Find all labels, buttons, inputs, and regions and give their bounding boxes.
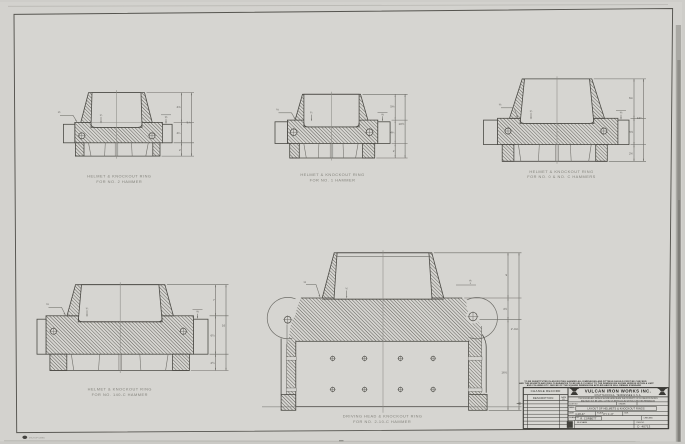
svg-text:ORDER: ORDER <box>619 403 626 405</box>
svg-text:DESCRIPTION: DESCRIPTION <box>533 396 554 400</box>
svg-text:2¼: 2¼ <box>629 151 634 155</box>
svg-text:4¾: 4¾ <box>177 131 182 135</box>
svg-text:4½: 4½ <box>503 307 508 311</box>
svg-text:HELMET & KNOCKOUT RING: HELMET & KNOCKOUT RING <box>88 387 152 392</box>
svg-text:FOR NO. 0 & NO. C HAMMERS: FOR NO. 0 & NO. C HAMMERS <box>527 174 596 179</box>
svg-text:9⅞: 9⅞ <box>187 120 192 124</box>
svg-text:HELMET & KNOCKOUT RING: HELMET & KNOCKOUT RING <box>87 173 151 178</box>
svg-text:13¾: 13¾ <box>637 116 643 120</box>
svg-text:NAME: NAME <box>569 406 575 409</box>
svg-text:DATE: DATE <box>569 412 575 415</box>
svg-text:AND COLUMNS ETC. MAY BE OF THE: AND COLUMNS ETC. MAY BE OF THE SQUARE DI… <box>527 384 642 387</box>
svg-text:R. CORBETT: R. CORBETT <box>580 417 597 420</box>
svg-text:4-28-47: 4-28-47 <box>575 412 585 416</box>
svg-text:DRIVING HEAD & KNOCKOUT RING: DRIVING HEAD & KNOCKOUT RING <box>343 414 423 419</box>
svg-text:4¾: 4¾ <box>390 130 395 134</box>
svg-text:MICROFILMED: MICROFILMED <box>29 437 46 439</box>
svg-text:4⅝: 4⅝ <box>177 105 182 109</box>
svg-text:C- 40713: C- 40713 <box>637 424 651 428</box>
svg-text:FOR NO. 2-10-C HAMMER: FOR NO. 2-10-C HAMMER <box>353 419 411 424</box>
svg-text:FOR NO. 2 HAMMER: FOR NO. 2 HAMMER <box>96 179 142 184</box>
svg-text:CUST NO: CUST NO <box>569 403 578 405</box>
svg-text:HELMET & KNOCKOUT RING: HELMET & KNOCKOUT RING <box>300 172 364 177</box>
svg-text:LAYOUT OF HELMETS & KNOCKOUT R: LAYOUT OF HELMETS & KNOCKOUT RINGS <box>587 407 644 411</box>
svg-text:DRAWN BY: DRAWN BY <box>569 416 580 419</box>
svg-text:5½: 5½ <box>629 130 634 134</box>
svg-text:6½: 6½ <box>211 334 216 338</box>
svg-text:VULCAN IRON WORKS INC.: VULCAN IRON WORKS INC. <box>585 389 652 394</box>
svg-text:CHECKED: CHECKED <box>644 417 654 419</box>
svg-text:FILE NAME: FILE NAME <box>577 421 588 424</box>
svg-text:FOR NO. 1 HAMMER: FOR NO. 1 HAMMER <box>310 177 356 182</box>
svg-text:16½: 16½ <box>501 371 507 375</box>
svg-text:B.W.: B.W. <box>625 413 629 415</box>
svg-text:CHANGE RECORD: CHANGE RECORD <box>531 389 562 393</box>
svg-text:FOR NO. 140-C HAMMER: FOR NO. 140-C HAMMER <box>92 392 148 397</box>
svg-text:5⅛: 5⅛ <box>390 105 395 109</box>
svg-text:2'-0⅛: 2'-0⅛ <box>511 327 519 331</box>
svg-text:6¼: 6¼ <box>629 96 634 100</box>
svg-text:10½: 10½ <box>398 122 404 126</box>
svg-text:16: 16 <box>222 324 226 328</box>
svg-text:3"= 1'-0": 3"= 1'-0" <box>603 412 614 416</box>
svg-text:2½: 2½ <box>211 361 216 365</box>
